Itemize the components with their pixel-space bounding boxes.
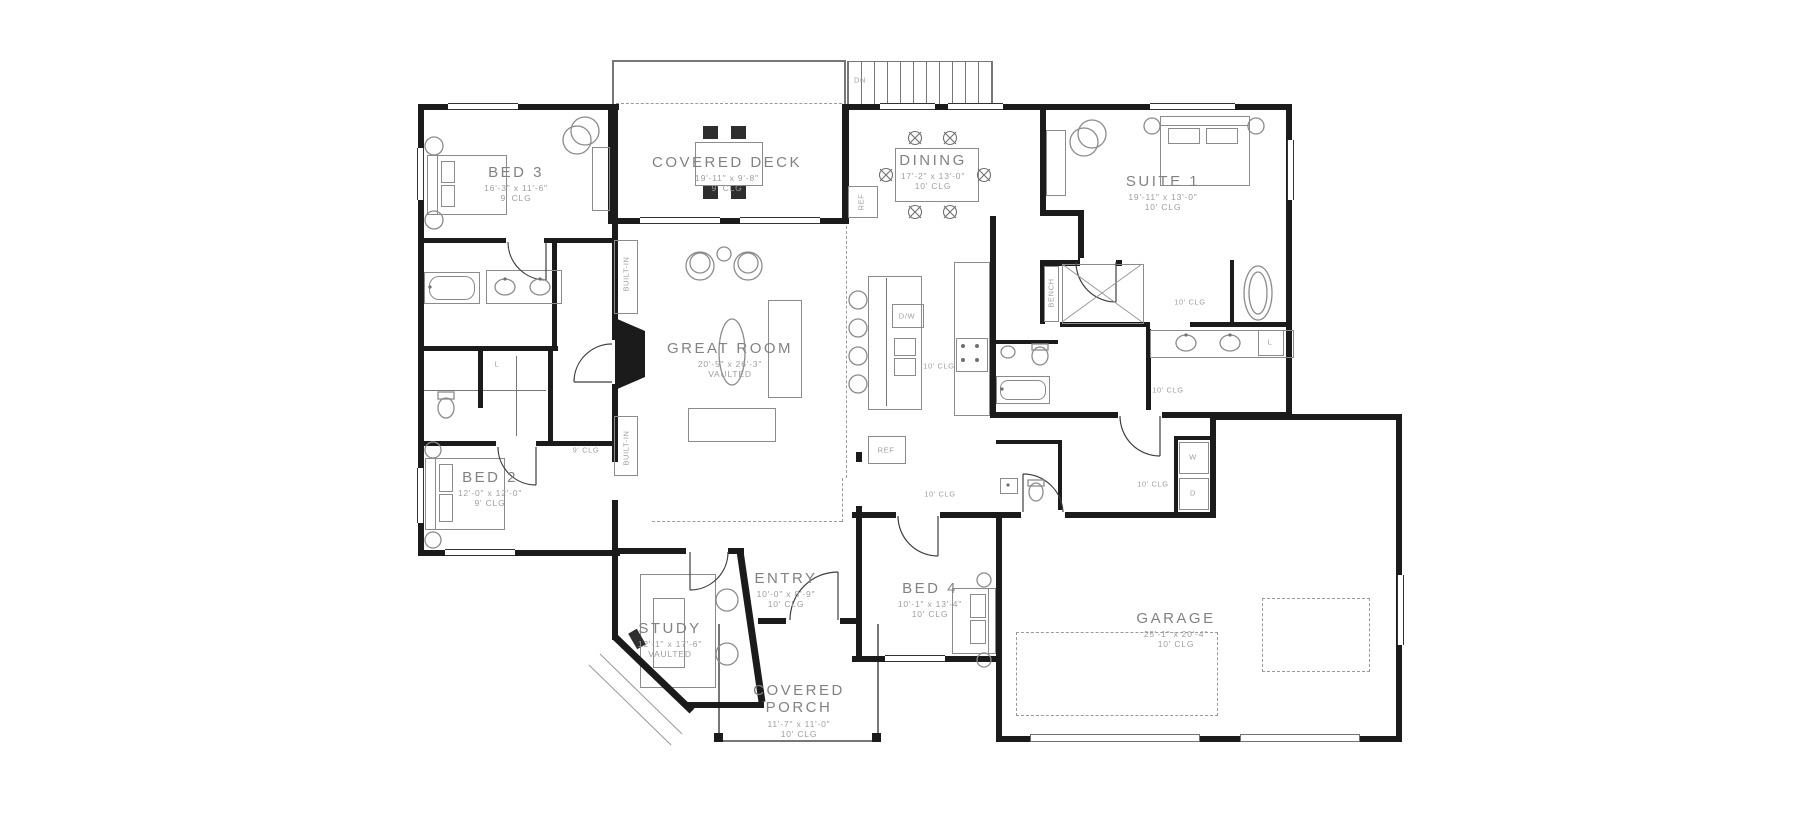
wall <box>612 548 618 640</box>
toilet-tank <box>438 392 454 399</box>
fixtures-layer <box>0 0 1820 820</box>
bar-stool <box>849 375 867 393</box>
wall <box>1058 440 1062 516</box>
window <box>740 217 820 224</box>
door-opening <box>610 340 620 384</box>
nightstand <box>425 532 441 548</box>
nightstand <box>977 573 991 587</box>
bench-label: BENCH <box>1047 278 1056 307</box>
window <box>445 549 515 556</box>
room-dims: 25'-1" x 20'-4" <box>1136 629 1215 639</box>
armchair <box>738 253 758 273</box>
nightstand <box>1144 118 1160 134</box>
room-ceiling: VAULTED <box>638 649 702 659</box>
ceiling-label: 10' CLG <box>923 362 954 371</box>
door-opening <box>496 439 536 448</box>
room-dims: 19'-11" x 9'-8" <box>652 173 802 183</box>
wall <box>418 346 558 351</box>
room-name: COVERED PORCH <box>747 682 851 717</box>
dining-chair <box>944 132 957 145</box>
room-name: ENTRY <box>754 570 817 587</box>
room-dims: 10'-0" x 8'-9" <box>754 589 817 599</box>
door-opening <box>1021 510 1065 520</box>
armchair <box>690 253 710 273</box>
porch-post <box>872 733 881 742</box>
closet-rod <box>516 356 517 436</box>
porch-edge <box>877 624 879 742</box>
room-dims: 19'-11" x 13'-0" <box>1126 192 1200 202</box>
wall <box>996 440 1062 444</box>
linen-label: L <box>1268 338 1273 347</box>
sofa <box>688 408 776 442</box>
built-in-label: BUILT-IN <box>622 256 631 291</box>
room-label-great-room: GREAT ROOM 20'-5" x 26'-3" VAULTED <box>667 340 793 379</box>
ceiling-label: 10' CLG <box>924 490 955 499</box>
pillow <box>970 620 986 644</box>
room-name: GREAT ROOM <box>667 340 793 357</box>
ceiling-break-dashed <box>842 478 843 522</box>
room-name: DINING <box>899 152 967 169</box>
window <box>448 103 518 110</box>
window <box>885 655 945 662</box>
wall <box>478 350 483 408</box>
room-label-study: STUDY 12'-1" x 17'-6" VAULTED <box>638 620 702 659</box>
dryer-label: D <box>1190 489 1196 498</box>
dishwasher-label: D/W <box>899 312 915 321</box>
room-dims: 16'-3" x 11'-6" <box>484 183 548 193</box>
range <box>956 338 988 372</box>
wall <box>1060 512 1216 518</box>
bar-stool <box>849 291 867 309</box>
deck-roof-edge <box>844 60 846 105</box>
door-arc <box>1023 474 1063 512</box>
room-name: COVERED DECK <box>652 154 802 171</box>
deck-chair <box>731 126 746 139</box>
dining-chair <box>880 169 893 182</box>
pillow <box>1168 128 1200 144</box>
nightstand <box>1248 118 1264 134</box>
room-label-bed3: BED 3 16'-3" x 11'-6" 9' CLG <box>484 164 548 203</box>
ceiling-break-dashed <box>652 521 842 522</box>
closet-rod <box>422 390 546 391</box>
stairs-dn-label: DN <box>854 76 866 85</box>
window <box>417 468 424 523</box>
pillow <box>1206 128 1238 144</box>
room-label-entry: ENTRY 10'-0" x 8'-9" 10' CLG <box>754 570 817 609</box>
shower <box>1062 264 1144 324</box>
wall <box>1210 414 1216 518</box>
desk-chair <box>716 589 738 611</box>
room-dims: 11'-7" x 11'-0" <box>747 719 851 729</box>
door-arc <box>898 516 938 556</box>
window <box>1397 575 1404 645</box>
deck-chair <box>703 126 718 139</box>
toilet <box>1032 347 1048 365</box>
door-opening <box>854 462 864 506</box>
window <box>880 103 935 110</box>
room-label-bed2: BED 2 12'-0" x 12'-0" 9' CLG <box>458 469 522 508</box>
round-chair <box>563 126 591 154</box>
bathtub-basin <box>1000 380 1046 400</box>
floor-plan: BED 3 16'-3" x 11'-6" 9' CLG COVERED DEC… <box>0 0 1820 820</box>
wall <box>1174 436 1210 440</box>
room-dims: 10'-1" x 13'-4" <box>898 599 962 609</box>
dining-chair <box>944 206 957 219</box>
room-dims: 12'-1" x 17'-6" <box>638 639 702 649</box>
room-dims: 17'-2" x 13'-0" <box>899 171 967 181</box>
toilet-tank <box>1032 344 1048 350</box>
wardrobe <box>592 147 610 211</box>
headboard <box>988 588 996 654</box>
garage-door-panel <box>1030 734 1200 742</box>
toilet <box>1029 483 1043 501</box>
dresser <box>1046 130 1066 196</box>
ceiling-label: 10' CLG <box>1174 298 1205 307</box>
room-dims: 12'-0" x 12'-0" <box>458 488 522 498</box>
freestanding-tub-basin <box>1249 272 1267 314</box>
built-in-label: BUILT-IN <box>622 430 631 465</box>
door-opening <box>1118 410 1162 420</box>
door-opening <box>896 510 940 520</box>
armchair <box>686 252 714 280</box>
island-sink <box>894 338 916 356</box>
room-name: BED 3 <box>484 164 548 181</box>
wall <box>996 656 1002 742</box>
porch-edge <box>718 740 879 742</box>
freestanding-tub <box>1244 266 1272 320</box>
window <box>948 103 1003 110</box>
wall <box>1210 414 1402 420</box>
toilet <box>438 398 454 418</box>
dining-chair <box>909 132 922 145</box>
deck-roof-edge <box>612 60 846 62</box>
round-chair <box>571 117 599 145</box>
window <box>417 148 424 200</box>
room-name: BED 4 <box>898 580 962 597</box>
wall <box>996 340 1058 344</box>
room-label-covered-deck: COVERED DECK 19'-11" x 9'-8" 9' CLG <box>652 154 802 193</box>
wall <box>1174 436 1178 516</box>
pedestal-sink <box>1000 478 1018 494</box>
room-label-suite1: SUITE 1 19'-11" x 13'-0" 10' CLG <box>1126 173 1200 212</box>
deck-roof-edge <box>612 60 614 105</box>
pillow <box>441 185 455 207</box>
headboard <box>427 155 438 215</box>
pillow <box>439 464 453 492</box>
porch-edge <box>718 624 720 740</box>
room-ceiling: 10' CLG <box>899 181 967 191</box>
room-name: BED 2 <box>458 469 522 486</box>
room-dims: 20'-5" x 26'-3" <box>667 359 793 369</box>
island-sink <box>894 358 916 376</box>
door-opening <box>506 236 544 245</box>
ceiling-label: 9' CLG <box>573 446 600 455</box>
room-ceiling: 9' CLG <box>652 183 802 193</box>
linen-label: L <box>495 360 500 369</box>
garage-door-panel <box>1240 734 1360 742</box>
bathtub-basin <box>429 276 475 300</box>
door-arc <box>574 344 612 382</box>
room-ceiling: 10' CLG <box>754 599 817 609</box>
room-ceiling: VAULTED <box>667 369 793 379</box>
room-label-covered-porch: COVERED PORCH 11'-7" x 11'-0" 10' CLG <box>747 682 851 739</box>
room-label-garage: GARAGE 25'-1" x 20'-4" 10' CLG <box>1136 610 1215 649</box>
headboard <box>425 458 436 530</box>
washer-label: W <box>1189 453 1197 462</box>
toilet-tank <box>1028 480 1044 486</box>
dining-chair <box>909 206 922 219</box>
pillow <box>441 161 455 183</box>
bar-stool <box>849 319 867 337</box>
round-chair <box>1078 120 1106 148</box>
room-ceiling: 10' CLG <box>747 729 851 739</box>
window <box>1287 140 1294 200</box>
round-chair <box>1070 128 1098 156</box>
bar-stool <box>849 347 867 365</box>
room-ceiling: 9' CLG <box>484 193 548 203</box>
pillow <box>439 494 453 522</box>
room-ceiling: 10' CLG <box>1126 202 1200 212</box>
porch-post <box>714 733 723 742</box>
door-opening <box>786 616 840 626</box>
room-name: SUITE 1 <box>1126 173 1200 190</box>
armchair <box>734 252 762 280</box>
room-name: GARAGE <box>1136 610 1215 627</box>
side-table <box>717 247 731 261</box>
room-label-dining: DINING 17'-2" x 13'-0" 10' CLG <box>899 152 967 191</box>
ceiling-label: 10' CLG <box>1137 480 1168 489</box>
nightstand <box>425 137 443 155</box>
fridge-label: REF <box>857 194 866 211</box>
pillow <box>970 594 986 618</box>
deck-roofline-dashed <box>616 103 842 104</box>
island-counter-line <box>886 278 887 406</box>
parking-space <box>1262 598 1370 672</box>
door-opening <box>686 546 728 556</box>
wall <box>996 512 1002 662</box>
room-name: STUDY <box>638 620 702 637</box>
window <box>640 217 720 224</box>
wall <box>1230 260 1234 322</box>
ceiling-label: 10' CLG <box>1152 386 1183 395</box>
wall <box>548 346 553 446</box>
room-label-bed4: BED 4 10'-1" x 13'-4" 10' CLG <box>898 580 962 619</box>
room-ceiling: 9' CLG <box>458 498 522 508</box>
stairs-down <box>847 61 993 107</box>
room-ceiling: 10' CLG <box>898 609 962 619</box>
headboard <box>1160 116 1250 126</box>
room-ceiling: 10' CLG <box>1136 639 1215 649</box>
dining-chair <box>978 169 991 182</box>
door-arc <box>1120 416 1160 456</box>
window <box>1150 103 1235 110</box>
door-opening <box>1150 320 1190 329</box>
fridge-label: REF <box>878 446 895 455</box>
vanity <box>486 270 562 304</box>
ceiling-break-dashed <box>846 226 847 478</box>
sink <box>1001 346 1015 358</box>
